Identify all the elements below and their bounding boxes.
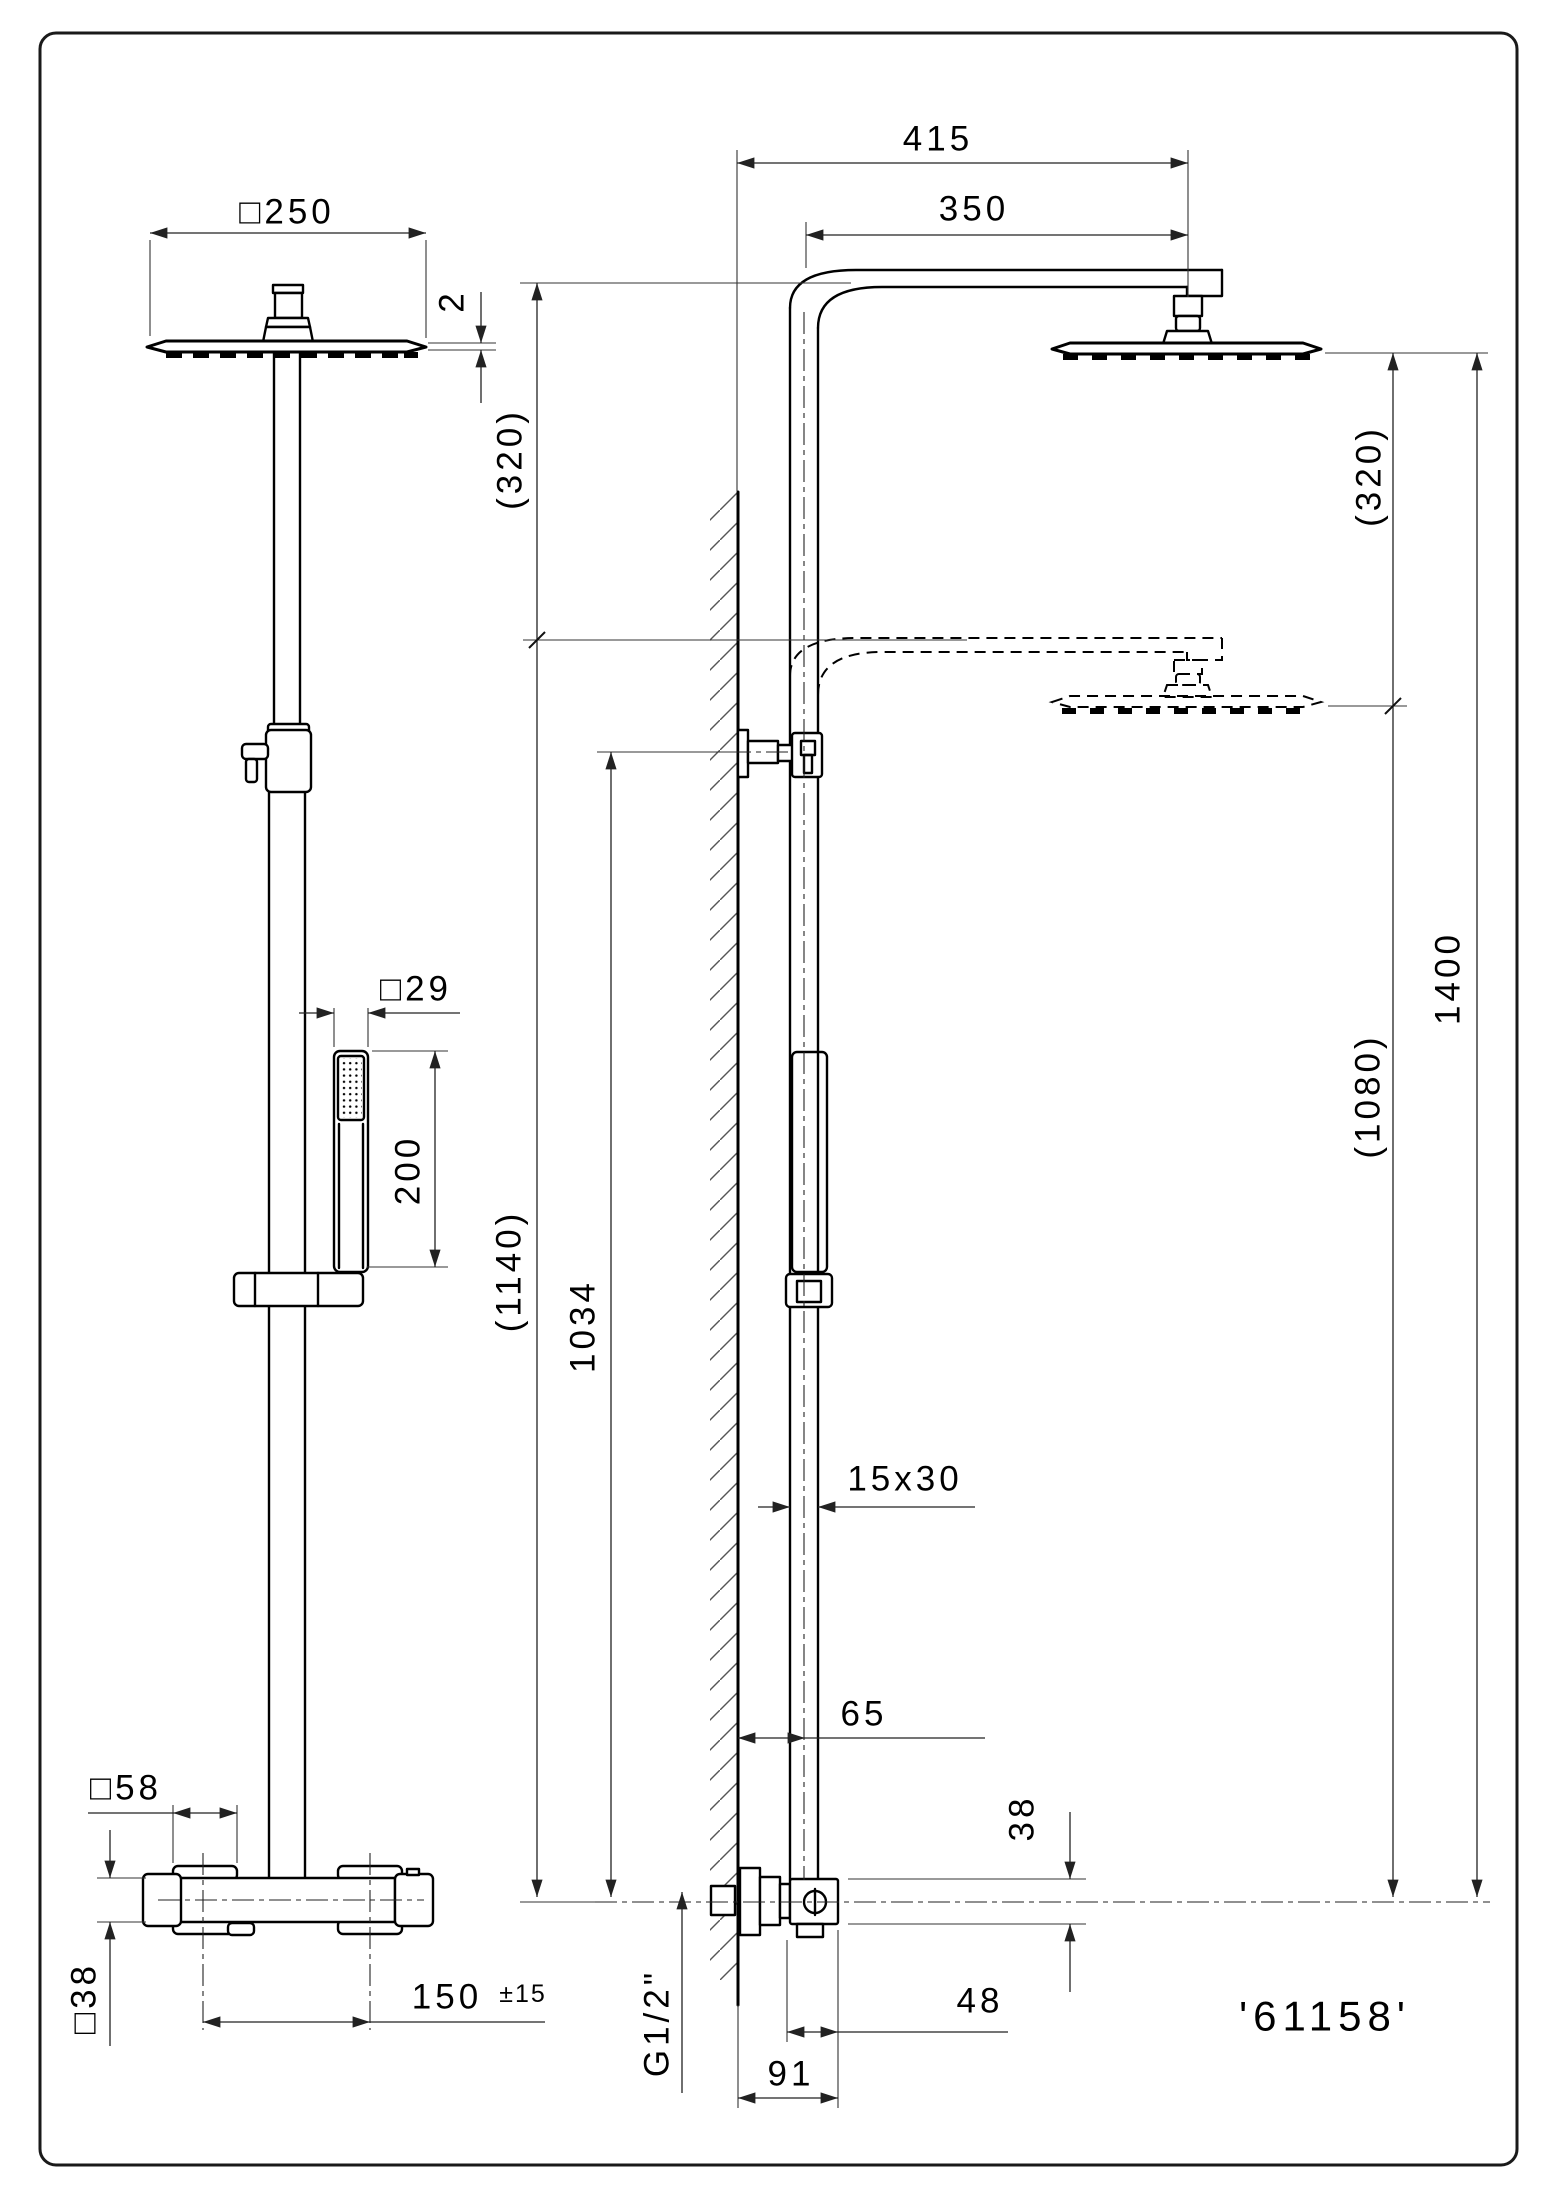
dim-label-inlet-thread: G1/2" (638, 1969, 677, 2077)
dim-label-handshower-width: □29 (380, 970, 452, 1009)
dim-label-handle-spacing-tolerance: ±15 (499, 1980, 547, 2008)
dim-label-height-lowered-side: (1080) (1349, 1033, 1388, 1158)
dim-label-height-lowered-front: (1140) (490, 1210, 529, 1333)
dim-label-arm-overall: 415 (903, 120, 973, 159)
dim-label-head-thickness: 2 (433, 289, 472, 312)
dim-label-handle-size: □58 (90, 1769, 162, 1808)
technical-drawing-sheet: □250 2 (320) □29 200 (1140) 1034 □58 □38… (0, 0, 1555, 2200)
dim-label-wall-offset: 65 (841, 1695, 888, 1734)
wall-section (710, 492, 738, 2005)
nozzles-side (1063, 354, 1310, 360)
dim-label-pipe-section: 15x30 (847, 1460, 962, 1499)
dim-label-drop-side: (320) (1350, 425, 1389, 527)
shower-system-drawing: □250 2 (320) □29 200 (1140) 1034 □58 □38… (0, 0, 1555, 2200)
product-code: '61158' (1239, 1993, 1411, 2040)
hand-shower-front (334, 1051, 368, 1272)
hand-shower-spray-face (340, 1058, 362, 1118)
dim-label-handle-spacing: 150 (412, 1978, 482, 2017)
dim-label-height-bracket: 1034 (564, 1279, 603, 1373)
dim-label-body-height: 38 (1003, 1795, 1042, 1842)
slider-bracket-front (234, 1273, 363, 1306)
diverter-button (228, 1923, 254, 1935)
dim-label-body-depth: 48 (957, 1982, 1004, 2021)
clamp-lever-handle (242, 744, 268, 759)
dim-label-head-width: □250 (239, 193, 335, 232)
safety-button (407, 1869, 419, 1875)
dim-label-wall-to-front: 91 (768, 2055, 815, 2094)
wall-hatch (710, 492, 738, 1980)
dim-label-body-size: □38 (65, 1962, 104, 2034)
dim-label-handshower-length: 200 (389, 1135, 428, 1205)
dim-label-arm-projection: 350 (939, 190, 1009, 229)
inlet-thread-nut (711, 1886, 735, 1915)
dim-label-drop-front: (320) (491, 408, 530, 510)
dim-label-height-total: 1400 (1429, 931, 1468, 1025)
